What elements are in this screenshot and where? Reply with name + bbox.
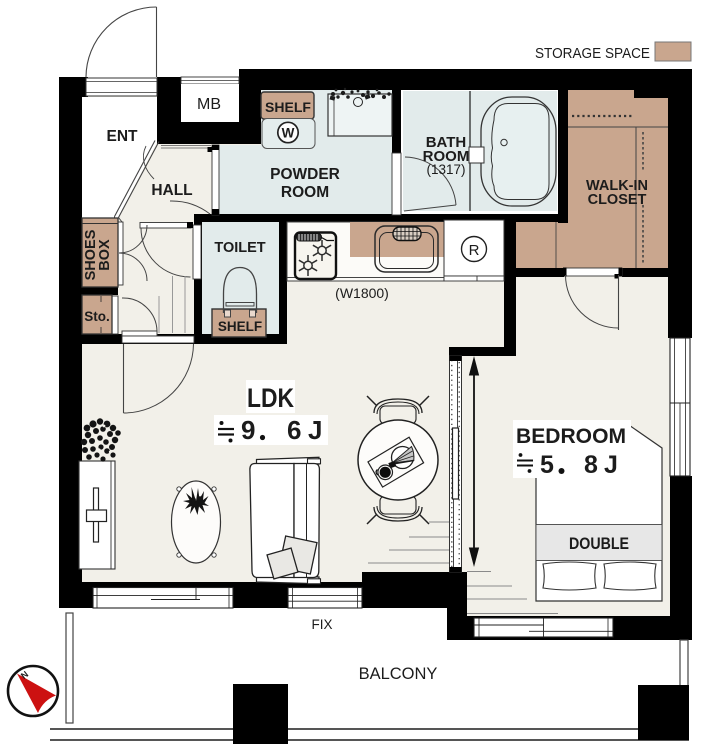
- svg-text:BALCONY: BALCONY: [359, 665, 438, 683]
- svg-text:POWDER: POWDER: [270, 166, 340, 183]
- svg-text:9: 9: [241, 415, 255, 445]
- svg-text:(W1800): (W1800): [335, 285, 389, 301]
- svg-text:FIX: FIX: [311, 617, 332, 632]
- svg-text:BOX: BOX: [97, 239, 113, 271]
- svg-text:DOUBLE: DOUBLE: [569, 535, 629, 553]
- svg-text:BEDROOM: BEDROOM: [516, 425, 626, 448]
- svg-text:CLOSET: CLOSET: [588, 192, 647, 208]
- svg-text:ROOM: ROOM: [281, 184, 329, 201]
- svg-text:W: W: [282, 126, 295, 141]
- svg-text:STORAGE SPACE: STORAGE SPACE: [535, 46, 650, 62]
- svg-text:(1317): (1317): [426, 162, 465, 177]
- svg-text:8: 8: [584, 451, 598, 479]
- svg-text:TOILET: TOILET: [214, 240, 265, 256]
- svg-text:J: J: [604, 451, 618, 479]
- svg-text:J: J: [308, 415, 322, 445]
- svg-text:ENT: ENT: [107, 128, 139, 145]
- svg-text:6: 6: [287, 415, 301, 445]
- svg-text:LDK: LDK: [247, 383, 294, 413]
- svg-text:Sto.: Sto.: [84, 309, 110, 324]
- svg-text:R: R: [469, 242, 480, 259]
- svg-text:SHELF: SHELF: [218, 319, 262, 334]
- svg-text:MB: MB: [197, 96, 221, 113]
- svg-text:HALL: HALL: [151, 182, 192, 199]
- svg-text:5: 5: [540, 451, 554, 479]
- svg-text:SHELF: SHELF: [265, 99, 311, 115]
